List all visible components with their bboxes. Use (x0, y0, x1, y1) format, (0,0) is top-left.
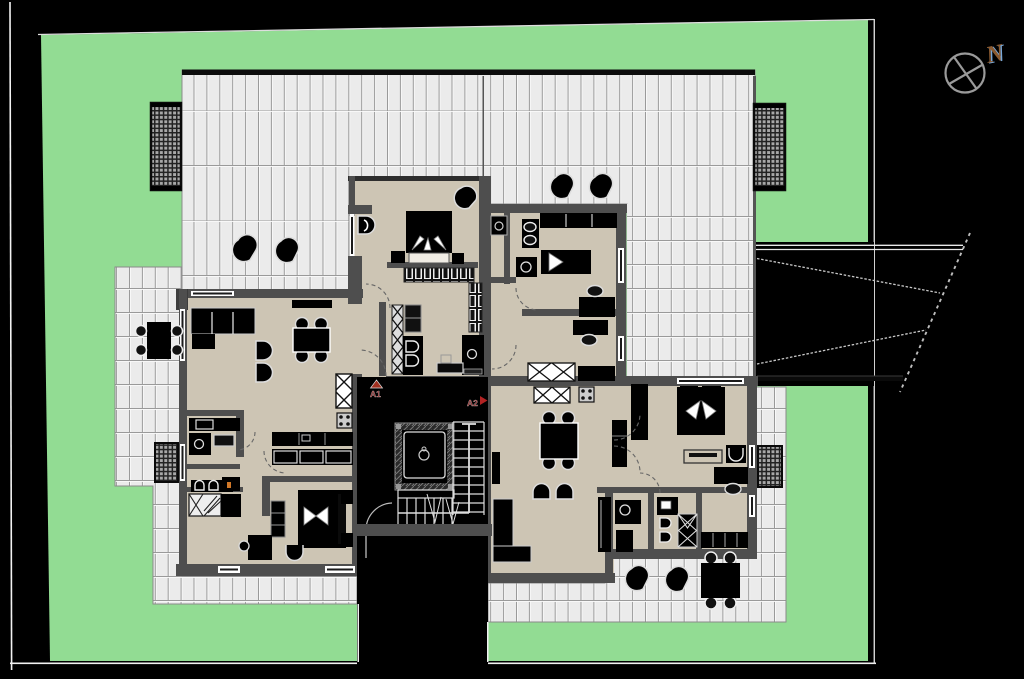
svg-text:A1: A1 (370, 389, 381, 399)
svg-text:A2: A2 (467, 398, 478, 408)
